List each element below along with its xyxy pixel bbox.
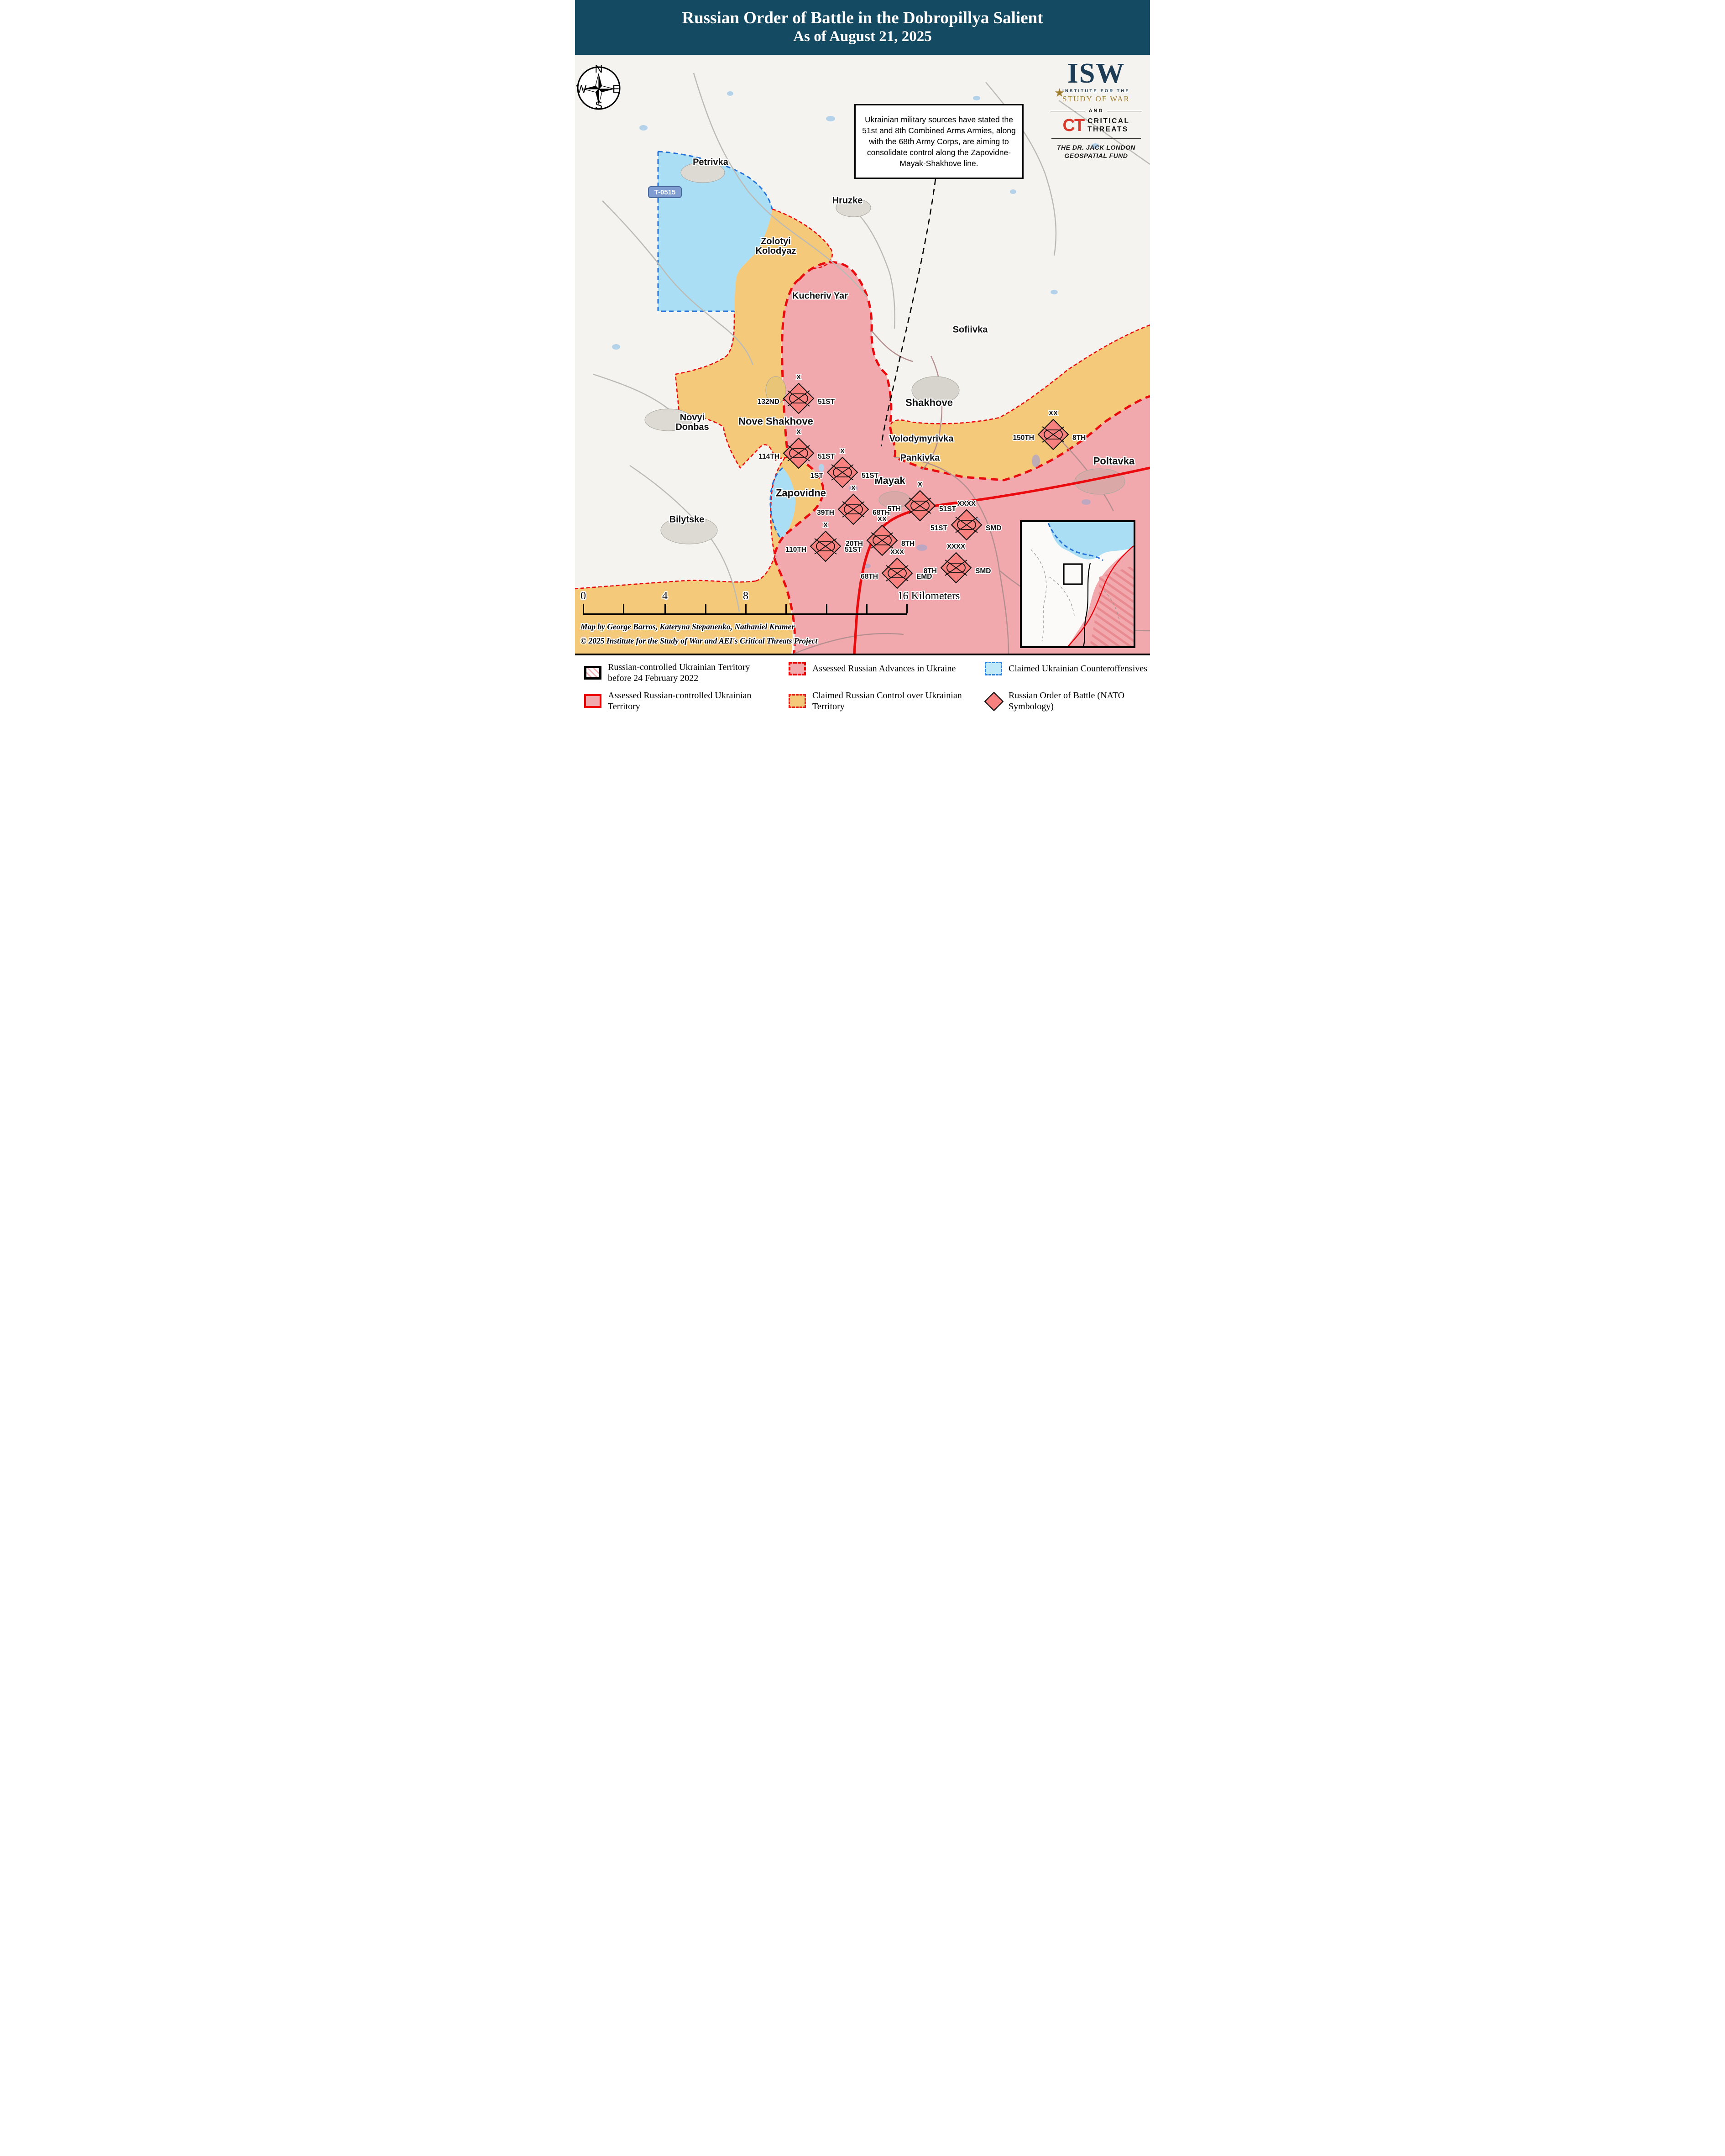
unit-echelon: X — [796, 428, 801, 436]
unit-echelon: X — [918, 481, 922, 488]
place-label-bilytske: Bilytske — [669, 515, 705, 525]
legend-label: Russian-controlled Ukrainian Territory b… — [608, 662, 758, 684]
unit-echelon: X — [796, 373, 801, 381]
scale-tick — [866, 604, 868, 613]
legend-label: Claimed Ukrainian Counteroffensives — [1009, 663, 1147, 674]
place-label-pankivka: Pankivka — [900, 454, 940, 463]
scale-label: 4 — [662, 590, 668, 602]
place-label-zolotyi-kolodyaz: Zolotyi Kolodyaz — [756, 237, 796, 256]
place-label-petrivka: Petrivka — [693, 158, 728, 167]
legend-item-claimed: Claimed Russian Control over Ukrainian T… — [789, 690, 963, 712]
and-label: AND — [1089, 108, 1104, 114]
scale-tick — [906, 604, 908, 613]
place-label-novyi-donbas: Novyi Donbas — [675, 413, 709, 432]
unit-echelon: X — [823, 521, 828, 529]
legend-item-oob: Russian Order of Battle (NATO Symbology) — [985, 690, 1150, 712]
unit-number-label: 51ST — [930, 524, 948, 532]
legend-label: Claimed Russian Control over Ukrainian T… — [812, 690, 963, 712]
scale-tick — [705, 604, 706, 613]
critical-threats-ct-icon: CT — [1063, 118, 1084, 133]
legend-label: Russian Order of Battle (NATO Symbology) — [1009, 690, 1150, 712]
unit-parent-label: SMD — [975, 567, 991, 575]
unit-number-label: 132ND — [758, 398, 779, 406]
scale-tick — [664, 604, 666, 613]
legend-label: Assessed Russian-controlled Ukrainian Te… — [608, 690, 758, 712]
map-canvas: PetrivkaHruzkeZolotyi KolodyazKucheriv Y… — [575, 55, 1150, 654]
unit-number-label: 110TH — [785, 546, 806, 554]
unit-parent-label: 8TH — [1072, 434, 1086, 442]
unit-number-label: 150TH — [1013, 434, 1034, 442]
divider-rule — [1051, 138, 1141, 139]
isw-map-page: Russian Order of Battle in the Dobropill… — [575, 0, 1150, 719]
compass-s: S — [595, 99, 602, 112]
isw-logo: ISW — [1051, 59, 1142, 88]
scale-tick — [745, 604, 747, 613]
legend-swatch-assessed-icon — [584, 694, 601, 708]
scale-tick — [826, 604, 827, 613]
annotation-text: Ukrainian military sources have stated t… — [861, 114, 1017, 169]
map-subtitle-date: As of August 21, 2025 — [793, 28, 931, 46]
scale-tick — [583, 604, 584, 613]
unit-echelon: X — [851, 484, 856, 492]
annotation-box: Ukrainian military sources have stated t… — [854, 104, 1024, 179]
legend-label: Assessed Russian Advances in Ukraine — [812, 663, 956, 674]
inset-map — [1020, 520, 1135, 648]
isw-star-icon: ★ — [1054, 86, 1065, 100]
road-badge-t0515: T-0515 — [648, 186, 682, 198]
credits-line2: © 2025 Institute for the Study of War an… — [580, 634, 817, 648]
logo-block: ISW ★ INSTITUTE FOR THE STUDY OF WAR AND… — [1051, 59, 1142, 160]
title-bar: Russian Order of Battle in the Dobropill… — [575, 0, 1150, 55]
credits: Map by George Barros, Kateryna Stepanenk… — [580, 620, 817, 648]
legend-swatch-prewar-icon — [584, 666, 601, 680]
scale-tick — [785, 604, 787, 613]
unit-parent-label: EMD — [916, 573, 932, 581]
unit-echelon: XX — [878, 515, 887, 523]
legend-swatch-advances-icon — [789, 662, 806, 675]
place-label-volodymyrivka: Volodymyrivka — [889, 434, 954, 444]
divider-line — [1051, 111, 1085, 111]
legend-item-counter: Claimed Ukrainian Counteroffensives — [985, 662, 1147, 675]
scale-tick — [623, 604, 624, 613]
scale-label: 16 Kilometers — [898, 590, 960, 602]
critical-label: CRITICAL — [1087, 117, 1129, 126]
unit-echelon: X — [840, 447, 845, 455]
unit-echelon: XX — [1049, 409, 1058, 417]
fund-line2: GEOSPATIAL FUND — [1051, 152, 1142, 160]
map-title: Russian Order of Battle in the Dobropill… — [682, 9, 1043, 28]
compass-w: W — [576, 83, 587, 95]
legend-item-prewar: Russian-controlled Ukrainian Territory b… — [584, 662, 758, 684]
credits-line1: Map by George Barros, Kateryna Stepanenk… — [580, 620, 817, 634]
unit-number-label: 68TH — [861, 573, 878, 581]
place-label-shakhove: Shakhove — [905, 397, 953, 408]
scale-label: 8 — [743, 590, 748, 602]
unit-echelon: XXXX — [957, 500, 976, 508]
compass-rose: N E S W — [577, 66, 621, 110]
legend-item-assessed: Assessed Russian-controlled Ukrainian Te… — [584, 690, 758, 712]
unit-parent-label: 51ST — [818, 398, 835, 406]
divider-line — [1107, 111, 1142, 111]
place-label-hruzke: Hruzke — [832, 196, 863, 206]
legend-swatch-oob-icon — [985, 694, 1002, 708]
legend-swatch-claimed-icon — [789, 694, 806, 708]
scale-bar-line — [583, 613, 907, 615]
unit-number-label: 114TH — [758, 453, 779, 461]
compass-n: N — [595, 63, 602, 75]
fund-line1: THE DR. JACK LONDON — [1051, 143, 1142, 152]
compass-e: E — [612, 83, 620, 95]
place-label-sofiivka: Sofiivka — [953, 325, 988, 335]
legend: Russian-controlled Ukrainian Territory b… — [575, 654, 1150, 719]
legend-item-advances: Assessed Russian Advances in Ukraine — [789, 662, 956, 675]
threats-label: THREATS — [1087, 126, 1129, 134]
scale-label: 0 — [580, 590, 586, 602]
unit-parent-label: SMD — [986, 524, 1001, 532]
place-label-kucheriv-yar: Kucheriv Yar — [792, 292, 848, 301]
unit-echelon: XXXX — [947, 543, 965, 550]
legend-swatch-counter-icon — [985, 662, 1002, 675]
unit-echelon: XXX — [890, 548, 904, 556]
